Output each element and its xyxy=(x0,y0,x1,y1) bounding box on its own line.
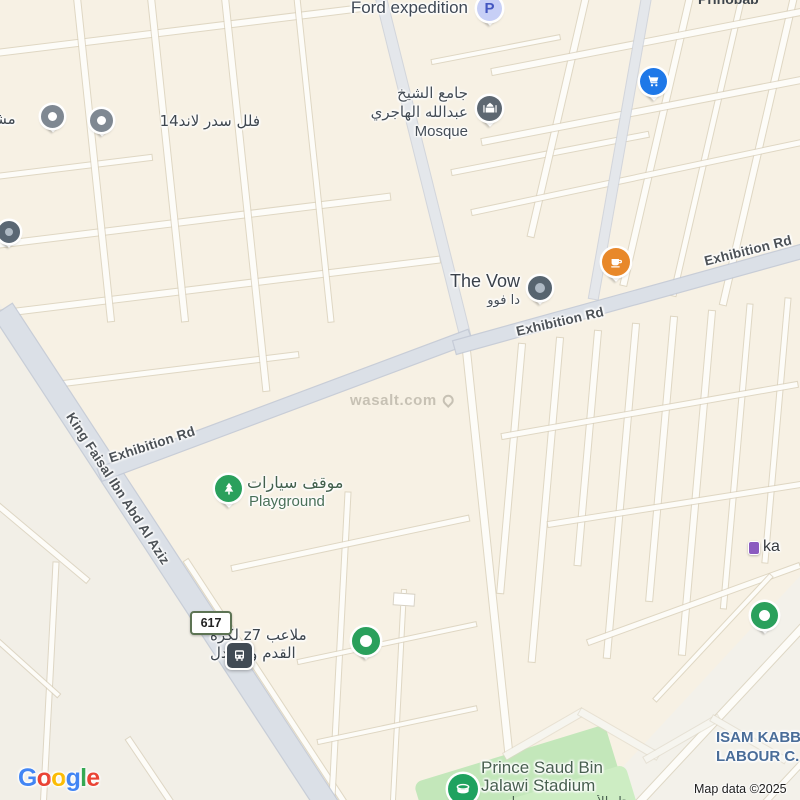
road-segment xyxy=(604,324,639,658)
clipped-label-text: Prinobab xyxy=(698,0,798,7)
watermark-pin-icon xyxy=(440,392,456,408)
stadium-line2: Jalawi Stadium xyxy=(481,777,603,795)
clipped-label-top-right: Prinobab xyxy=(698,0,798,7)
parking-pin[interactable]: P xyxy=(477,0,502,21)
mosque-pin[interactable] xyxy=(477,96,502,121)
poi-label-ford-expedition[interactable]: Ford expedition xyxy=(330,0,468,18)
stadium-line3-ar: ستاد الأمير سعود بن جلوي xyxy=(487,795,637,800)
road-segment xyxy=(646,317,677,601)
route-badge-617-text: 617 xyxy=(201,616,222,630)
road-segment xyxy=(231,515,469,570)
coffee-cup-icon xyxy=(608,254,624,270)
shopping-pin[interactable] xyxy=(640,68,667,95)
watermark: wasalt.com xyxy=(350,392,453,409)
poi-label-stadium[interactable]: Prince Saud Bin Jalawi Stadium xyxy=(481,759,603,795)
poi-label-playground-ar[interactable]: موقف سيارات xyxy=(247,473,343,492)
road-segment xyxy=(0,2,385,57)
ka-place-icon[interactable] xyxy=(748,541,760,555)
road-segment xyxy=(575,331,601,566)
stadium-pin[interactable] xyxy=(448,774,478,800)
poi-label-clipped-left[interactable]: مشر xyxy=(0,110,16,128)
road-segment xyxy=(762,298,790,562)
coffee-pin[interactable] xyxy=(602,248,630,276)
poi-label-the-vow-ar[interactable]: دا فوو xyxy=(428,293,520,308)
map-data-attribution: Map data ©2025 xyxy=(694,782,787,796)
google-logo-letter: g xyxy=(66,764,80,792)
road-segment xyxy=(497,344,525,594)
route-badge-617: 617 xyxy=(190,611,232,635)
mosque-icon xyxy=(482,101,498,117)
bus-icon xyxy=(232,648,247,663)
the-vow-pin[interactable] xyxy=(528,276,552,300)
road-segment xyxy=(0,154,152,179)
google-logo-letter: G xyxy=(18,764,37,792)
isam-line1: ISAM KABB xyxy=(716,728,800,747)
z7-fields-pin[interactable] xyxy=(352,627,380,655)
road-segment xyxy=(0,257,440,318)
road-segment xyxy=(221,0,269,391)
mosque-name-ar-1: جامع الشيخ xyxy=(308,84,468,103)
mosque-name-ar-2: عبدالله الهاجري xyxy=(308,103,468,122)
parking-icon: P xyxy=(484,0,494,17)
google-logo-letter: o xyxy=(37,764,51,792)
poi-label-mosque[interactable]: جامع الشيخ عبدالله الهاجري Mosque xyxy=(308,84,468,141)
gray-poi-dot[interactable] xyxy=(90,109,113,132)
google-logo[interactable]: Google xyxy=(18,764,99,793)
shopping-cart-icon xyxy=(646,74,661,89)
google-logo-letter: o xyxy=(51,764,65,792)
poi-label-isam-labour[interactable]: ISAM KABB LABOUR C. xyxy=(716,728,800,766)
map-canvas[interactable]: King Faisal Ibn Abd Al Aziz Exhibition R… xyxy=(0,0,800,800)
poi-label-villa-land14[interactable]: فلل سدر لاند14 xyxy=(120,112,260,130)
building-footprint xyxy=(393,592,416,607)
road-segment xyxy=(721,304,753,608)
poi-label-playground-en[interactable]: Playground xyxy=(249,493,325,510)
road-segment xyxy=(0,194,390,249)
green-poi-pin-right[interactable] xyxy=(751,602,778,629)
poi-label-stadium-ar-clipped: ستاد الأمير سعود بن جلوي xyxy=(487,795,637,800)
watermark-text: wasalt.com xyxy=(350,392,437,409)
road-segment xyxy=(390,590,406,800)
google-logo-letter: e xyxy=(86,764,99,792)
mosque-name-en: Mosque xyxy=(308,122,468,141)
gray-poi-dot[interactable] xyxy=(41,105,64,128)
bus-station-icon[interactable] xyxy=(225,641,254,670)
stadium-line1: Prince Saud Bin xyxy=(481,759,603,777)
isam-line2: LABOUR C. xyxy=(716,747,800,766)
poi-label-ka[interactable]: ka xyxy=(763,538,780,556)
poi-label-the-vow[interactable]: The Vow xyxy=(398,271,520,292)
tree-icon xyxy=(221,481,237,497)
road-segment xyxy=(529,338,563,662)
road-segment xyxy=(147,0,188,321)
stadium-icon xyxy=(454,780,472,798)
slate-poi-pin-left-edge[interactable] xyxy=(0,221,20,243)
road-segment xyxy=(462,336,519,800)
playground-pin[interactable] xyxy=(215,475,242,502)
road-segment xyxy=(502,381,798,438)
